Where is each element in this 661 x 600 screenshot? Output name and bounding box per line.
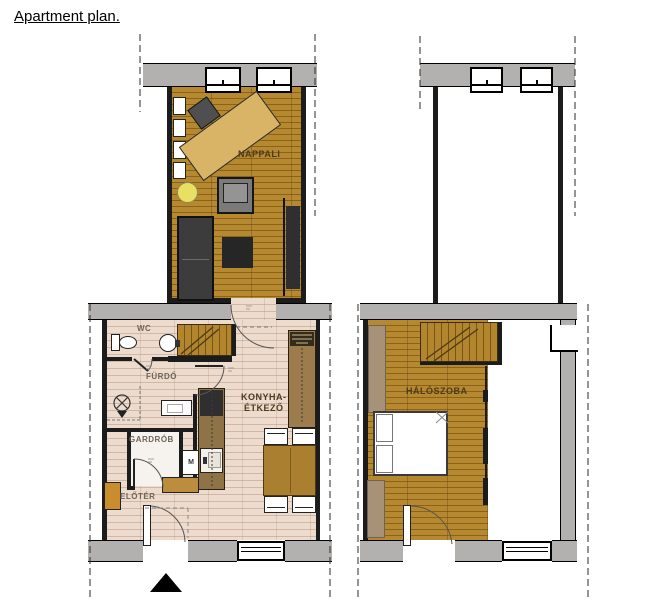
wall-shelf (173, 119, 186, 137)
bedroom-door (403, 505, 411, 546)
railing-post (483, 478, 488, 505)
facade-wall-bottom-left-plan (188, 540, 237, 562)
armchair-seat (223, 183, 248, 203)
bedroom-cabinet (367, 480, 385, 538)
sink-bowl (208, 452, 221, 468)
washbasin (161, 400, 192, 416)
wall (316, 320, 320, 540)
room-label-living: NAPPALI (238, 149, 280, 159)
wall-shelf (173, 97, 186, 115)
window-frame (506, 547, 548, 548)
window-frame (241, 547, 281, 548)
window-frame (241, 551, 281, 552)
armchair (217, 177, 254, 214)
window (502, 541, 552, 561)
tv-cabinet (286, 206, 300, 289)
room-label-wc: WC (137, 324, 151, 333)
sofa (177, 216, 214, 301)
dining-chair (264, 496, 288, 513)
wall (193, 394, 197, 490)
table-seam (290, 448, 291, 493)
stair-base-wall (168, 356, 232, 362)
chair-back (295, 433, 313, 434)
floor-lamp (177, 182, 198, 203)
facade-wall-middle-right-plan (360, 303, 577, 320)
chair-back (295, 507, 313, 508)
window (470, 67, 503, 93)
facade-wall-bottom-left-plan (88, 540, 143, 562)
room-label-bathroom: FÜRDŐ (146, 372, 177, 381)
living-door-threshold (231, 298, 276, 320)
stair-edge (420, 362, 502, 365)
window (520, 67, 553, 93)
wall (558, 87, 563, 303)
shoe-cabinet (104, 482, 121, 510)
staircase-lower (177, 324, 232, 356)
wardrobe (368, 325, 386, 413)
railing-post (483, 390, 488, 402)
wall (152, 357, 168, 361)
wall (232, 324, 236, 356)
cooktop (200, 390, 223, 416)
pillow (376, 445, 393, 473)
room-label-wardrobe: GARDRÓB (129, 435, 174, 444)
chair-back (267, 507, 285, 508)
page-title: Apartment plan. (14, 8, 120, 25)
facade-wall-middle-left-plan (88, 303, 231, 320)
basin-tap (175, 340, 180, 347)
room-label-kitchen-line2: ÉTKEZŐ (244, 403, 284, 413)
washbasin-bowl (167, 404, 183, 413)
media-wall-line (283, 198, 285, 296)
wall-niche (550, 325, 578, 352)
dining-chair (264, 428, 288, 445)
window (205, 67, 241, 93)
wall (104, 357, 132, 361)
bench-cabinet (162, 477, 199, 493)
window-handle (486, 80, 488, 86)
sofa-seam (182, 259, 209, 260)
dining-chair (292, 428, 316, 445)
window (237, 541, 285, 561)
entrance-door (143, 505, 151, 546)
sink-tap (203, 457, 207, 464)
facade-wall-bottom-right-plan (552, 540, 577, 562)
wall (301, 87, 306, 303)
wall (433, 87, 438, 303)
chair-back (267, 433, 285, 434)
cabinet-label-band (290, 332, 314, 346)
room-label-bedroom: HÁLÓSZOBA (406, 386, 468, 396)
dining-chair (292, 496, 316, 513)
wall-shelf (173, 162, 186, 179)
wall (127, 486, 135, 490)
staircase-upper (420, 322, 498, 362)
facade-wall-bottom-right-plan (360, 540, 403, 562)
facade-wall-bottom-left-plan (285, 540, 332, 562)
room-label-kitchen-line1: KONYHA- (241, 392, 287, 402)
entrance-arrow (150, 573, 182, 592)
apartment-plan-page: Apartment plan. NAPPALI WC F (0, 0, 661, 600)
kitchen-sink (200, 448, 223, 473)
window-handle (273, 80, 275, 86)
window (256, 67, 292, 93)
coffee-table (222, 237, 253, 268)
party-wall (560, 320, 576, 562)
washing-machine-label: M (183, 451, 199, 474)
tall-cabinet (288, 330, 316, 428)
window-handle (536, 80, 538, 86)
railing-post (483, 428, 488, 464)
wall (498, 322, 502, 365)
dining-table (263, 445, 316, 496)
window-handle (222, 80, 224, 86)
toilet (119, 336, 137, 349)
facade-wall-bottom-right-plan (455, 540, 502, 562)
pillow (376, 414, 393, 442)
room-label-hall: ELŐTÉR (120, 492, 155, 501)
window-frame (506, 551, 548, 552)
facade-wall-middle-left-plan (276, 303, 332, 320)
wall (167, 87, 172, 303)
